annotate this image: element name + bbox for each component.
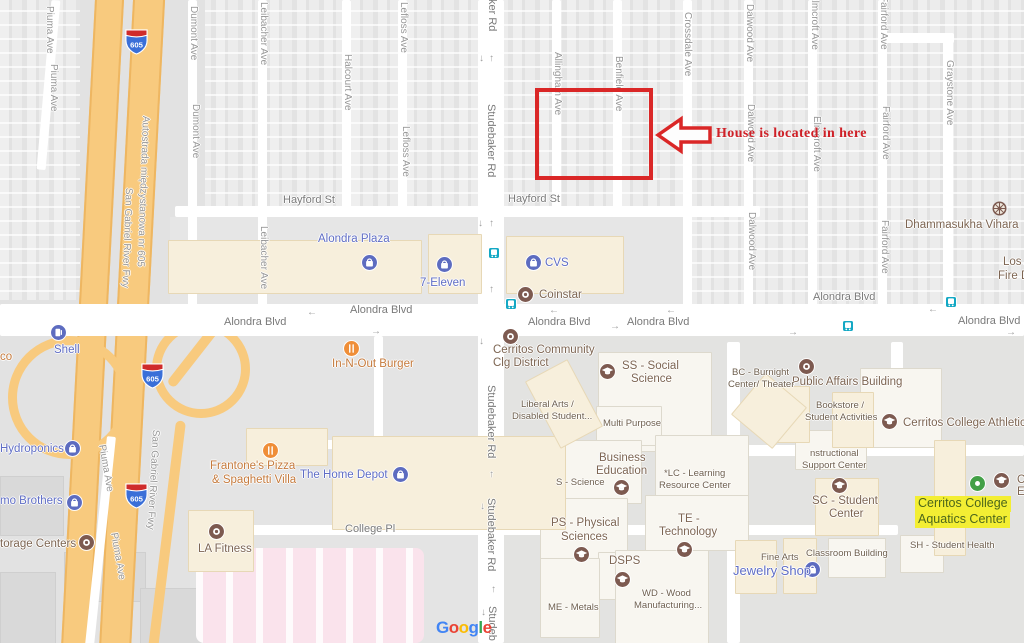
shell-icon[interactable] bbox=[50, 324, 67, 346]
road-hayford-st bbox=[175, 206, 760, 217]
map-label-halcourt-ave: Halcourt Ave bbox=[342, 54, 352, 111]
map-label-dalwood-ave: Dalwood Ave bbox=[744, 4, 754, 62]
poi-label-dsps: DSPS bbox=[609, 556, 640, 568]
map-label-disabled-student: Disabled Student... bbox=[512, 412, 592, 422]
svg-text:605: 605 bbox=[130, 41, 144, 50]
map-label-studebaker-rd: Studebaker Rd bbox=[486, 0, 497, 31]
road-arrow-label: ↓ bbox=[479, 54, 484, 64]
map-label-alondra-blvd: Alondra Blvd bbox=[958, 316, 1020, 327]
i605-shield-north-icon: 605 bbox=[124, 28, 149, 60]
map-label-student-activities: Student Activities bbox=[805, 413, 877, 423]
map-label-fairford-ave: Fairford Ave bbox=[879, 220, 889, 274]
poi-label-business: Business bbox=[599, 453, 646, 465]
map-label-elmcroft-ave: Elmcroft Ave bbox=[809, 0, 819, 50]
map-label-hayford-st: Hayford St bbox=[508, 194, 560, 205]
poi-label-science: Science bbox=[631, 374, 672, 386]
highlight-line-1: Cerritos College bbox=[915, 496, 1011, 512]
la-fitness-icon[interactable] bbox=[208, 523, 225, 545]
road-arrow-label: ← bbox=[307, 308, 317, 318]
road-arrow-label: ← bbox=[666, 306, 676, 316]
storage-centers-icon[interactable] bbox=[78, 534, 95, 556]
map-label-lefloss-ave: Lefloss Ave bbox=[398, 2, 408, 53]
google-logo-letter: g bbox=[469, 618, 479, 637]
road-arrow-label: ↑ bbox=[489, 219, 494, 229]
map-label-studebaker-rd: Studebaker Rd bbox=[485, 498, 496, 571]
map-label-sh-student-health: SH - Student Health bbox=[910, 541, 995, 551]
road-graystone-bend bbox=[884, 33, 954, 43]
map-label-manufacturing: Manufacturing... bbox=[634, 601, 702, 611]
map-label-support-center: Support Center bbox=[802, 461, 866, 471]
poi-label-public-affairs-building[interactable]: Public Affairs Building bbox=[792, 377, 902, 389]
map-label-lc-learning: *LC - Learning bbox=[664, 469, 725, 479]
map-label-center-theater: Center/ Theater bbox=[728, 380, 794, 390]
mo-brothers-icon[interactable] bbox=[66, 494, 83, 516]
map-label-alondra-blvd: Alondra Blvd bbox=[528, 317, 590, 328]
map-label-dumont-ave: Dumont Ave bbox=[188, 6, 198, 60]
hydroponics-icon[interactable] bbox=[64, 440, 81, 462]
industrial-building bbox=[0, 572, 56, 643]
cvs-icon[interactable] bbox=[525, 254, 542, 276]
map-label-dalwood-ave: Dalwood Ave bbox=[746, 212, 756, 270]
google-logo-letter: e bbox=[483, 618, 492, 637]
poi-label-in-n-out-burger[interactable]: In-N-Out Burger bbox=[332, 359, 414, 371]
poi-label-frantone-s-pizza[interactable]: Frantone's Pizza bbox=[210, 461, 295, 473]
svg-text:605: 605 bbox=[146, 375, 160, 384]
aquatics-center-highlight: Cerritos College Aquatics Center bbox=[915, 496, 1011, 528]
poi-label-technology: Technology bbox=[659, 527, 717, 539]
map-label-fairford-ave: Fairford Ave bbox=[880, 106, 890, 160]
annotation-arrow-icon bbox=[655, 115, 713, 155]
poi-label-sciences: Sciences bbox=[561, 532, 608, 544]
poi-label-torage-centers[interactable]: torage Centers bbox=[0, 539, 76, 551]
map-label-piuma-ave: Piuma Ave bbox=[44, 6, 54, 54]
map-label-studebaker-rd: Studebaker Rd bbox=[485, 385, 496, 458]
map-label-alondra-blvd: Alondra Blvd bbox=[627, 317, 689, 328]
poi-label-e: E bbox=[1017, 487, 1024, 499]
map-label-nstructional: nstructional bbox=[810, 449, 859, 459]
poi-label-cvs[interactable]: CVS bbox=[545, 258, 569, 270]
poi-label-coinstar[interactable]: Coinstar bbox=[539, 290, 582, 302]
road-arrow-label: ↑ bbox=[489, 285, 494, 295]
highlight-line-2: Aquatics Center bbox=[915, 512, 1010, 528]
map-canvas[interactable]: House is located in here Cerritos Colleg… bbox=[0, 0, 1024, 643]
google-logo[interactable]: Google bbox=[436, 618, 492, 638]
aquatics-center-icon[interactable] bbox=[969, 475, 986, 497]
business-education-icon[interactable] bbox=[613, 479, 630, 501]
poi-label-7-eleven[interactable]: 7-Eleven bbox=[420, 278, 465, 290]
poi-label-los-a: Los A bbox=[1003, 257, 1024, 269]
road-arrow-label: ← bbox=[549, 306, 559, 316]
map-label-graystone-ave: Graystone Ave bbox=[944, 60, 954, 125]
road-arrow-label: ↑ bbox=[489, 470, 494, 480]
map-label-crossdale-ave: Crossdale Ave bbox=[682, 12, 692, 76]
seven-eleven-icon[interactable] bbox=[436, 256, 453, 278]
road-arrow-label: ↑ bbox=[491, 585, 496, 595]
map-label-multi-purpose: Multi Purpose bbox=[603, 419, 661, 429]
map-label-lefloss-ave: Lefloss Ave bbox=[400, 126, 410, 177]
google-logo-letter: o bbox=[459, 618, 469, 637]
map-label-wd-wood: WD - Wood bbox=[642, 589, 691, 599]
bus-stop-2-icon[interactable] bbox=[505, 297, 517, 315]
map-label-me-metals: ME - Metals bbox=[548, 603, 599, 613]
map-label-fine-arts: Fine Arts bbox=[761, 553, 799, 563]
road-arrow-label: ↓ bbox=[481, 608, 486, 618]
map-label-leibacher-ave: Leibacher Ave bbox=[258, 2, 268, 65]
poi-label-ss-social: SS - Social bbox=[622, 361, 679, 373]
poi-label-fire-de: Fire De bbox=[998, 271, 1024, 283]
annotation-rectangle bbox=[535, 88, 653, 180]
map-label-elmcroft-ave: Elmcroft Ave bbox=[811, 116, 821, 172]
map-label-leibacher-ave: Leibacher Ave bbox=[258, 226, 268, 289]
te-technology-icon[interactable] bbox=[676, 541, 693, 563]
road-arrow-label: → bbox=[371, 327, 381, 337]
poi-label-sc-student[interactable]: SC - Student bbox=[812, 496, 878, 508]
map-label-s-science: S - Science bbox=[556, 478, 605, 488]
map-label-dumont-ave: Dumont Ave bbox=[190, 104, 200, 158]
google-logo-letter: G bbox=[436, 618, 449, 637]
alondra-plaza-icon[interactable] bbox=[361, 254, 378, 276]
road-arrow-label: → bbox=[610, 322, 620, 332]
poi-label-center[interactable]: Center bbox=[829, 509, 864, 521]
map-label-studebaker-rd: Studebaker Rd bbox=[485, 104, 496, 177]
poi-label-cerritos-community[interactable]: Cerritos Community bbox=[493, 345, 595, 357]
cerritos-college-athletic-icon[interactable] bbox=[881, 413, 898, 435]
road-arrow-label: ↓ bbox=[480, 502, 485, 512]
road-arrow-label: ↑ bbox=[489, 54, 494, 64]
google-logo-letter: o bbox=[449, 618, 459, 637]
poi-label-mo-brothers[interactable]: mo Brothers bbox=[0, 496, 63, 508]
map-label-bookstore: Bookstore / bbox=[816, 401, 864, 411]
building-alondra-plaza-building bbox=[168, 240, 422, 294]
map-label-alondra-blvd: Alondra Blvd bbox=[350, 305, 412, 316]
road-arrow-label: → bbox=[788, 328, 798, 338]
dsps-icon[interactable] bbox=[614, 571, 631, 593]
poi-label-jewelry-shop[interactable]: Jewelry Shop bbox=[733, 564, 811, 577]
map-label-classroom-building: Classroom Building bbox=[806, 549, 888, 559]
poi-label-alondra-plaza[interactable]: Alondra Plaza bbox=[318, 234, 390, 246]
map-label-bc-burnight: BC - Burnight bbox=[732, 368, 789, 378]
road-arrow-label: ← bbox=[928, 305, 938, 315]
poi-label-hydroponics[interactable]: Hydroponics bbox=[0, 444, 64, 456]
svg-text:605: 605 bbox=[130, 495, 144, 504]
road-arrow-label: ↓ bbox=[479, 337, 484, 347]
road-arrow-label: ↓ bbox=[478, 219, 483, 229]
poi-label-education: Education bbox=[596, 466, 647, 478]
map-label-alondra-blvd: Alondra Blvd bbox=[224, 317, 286, 328]
poi-label-ps-physical: PS - Physical bbox=[551, 518, 619, 530]
poi-label-co: co bbox=[0, 352, 12, 364]
poi-label-cerritos-college-athletic[interactable]: Cerritos College Athletic bbox=[903, 418, 1024, 430]
home-depot-icon[interactable] bbox=[392, 466, 409, 488]
poi-label-c: C bbox=[1017, 475, 1024, 487]
building-home-depot-building bbox=[332, 436, 566, 530]
building-metals-building bbox=[540, 558, 600, 638]
bus-stop-3-icon[interactable] bbox=[842, 319, 854, 337]
i605-shield-mid-icon: 605 bbox=[140, 362, 165, 394]
poi-label-clg-district[interactable]: Clg District bbox=[493, 358, 549, 370]
annotation-note: House is located in here bbox=[716, 126, 867, 142]
poi-label-shell[interactable]: Shell bbox=[54, 345, 80, 357]
ss-social-science-icon[interactable] bbox=[599, 363, 616, 385]
map-label-college-pl: College Pl bbox=[345, 524, 395, 535]
road-arrow-label: → bbox=[1006, 328, 1016, 338]
poi-label-the-home-depot[interactable]: The Home Depot bbox=[300, 470, 388, 482]
map-label-hayford-st: Hayford St bbox=[283, 195, 335, 206]
ps-physical-sciences-icon[interactable] bbox=[573, 546, 590, 568]
poi-label-la-fitness[interactable]: LA Fitness bbox=[198, 544, 252, 556]
poi-label-spaghetti-villa[interactable]: & Spaghetti Villa bbox=[212, 475, 296, 487]
poi-label-dhammasukha-vihara[interactable]: Dhammasukha Vihara bbox=[905, 220, 1019, 232]
map-label-alondra-blvd: Alondra Blvd bbox=[813, 292, 875, 303]
map-label-fairford-ave: Fairford Ave bbox=[878, 0, 888, 50]
edge-poi-icon[interactable] bbox=[993, 472, 1010, 494]
bus-stop-4-icon[interactable] bbox=[945, 295, 957, 313]
bus-stop-1-icon[interactable] bbox=[488, 246, 500, 264]
map-label-resource-center: Resource Center bbox=[659, 481, 731, 491]
poi-label-te: TE - bbox=[678, 514, 700, 526]
map-label-liberal-arts: Liberal Arts / bbox=[521, 400, 574, 410]
coinstar-icon[interactable] bbox=[517, 286, 534, 308]
map-label-piuma-ave: Piuma Ave bbox=[48, 64, 58, 112]
map-label-san-gabriel-river-fwy: San Gabriel River Fwy bbox=[120, 188, 133, 288]
